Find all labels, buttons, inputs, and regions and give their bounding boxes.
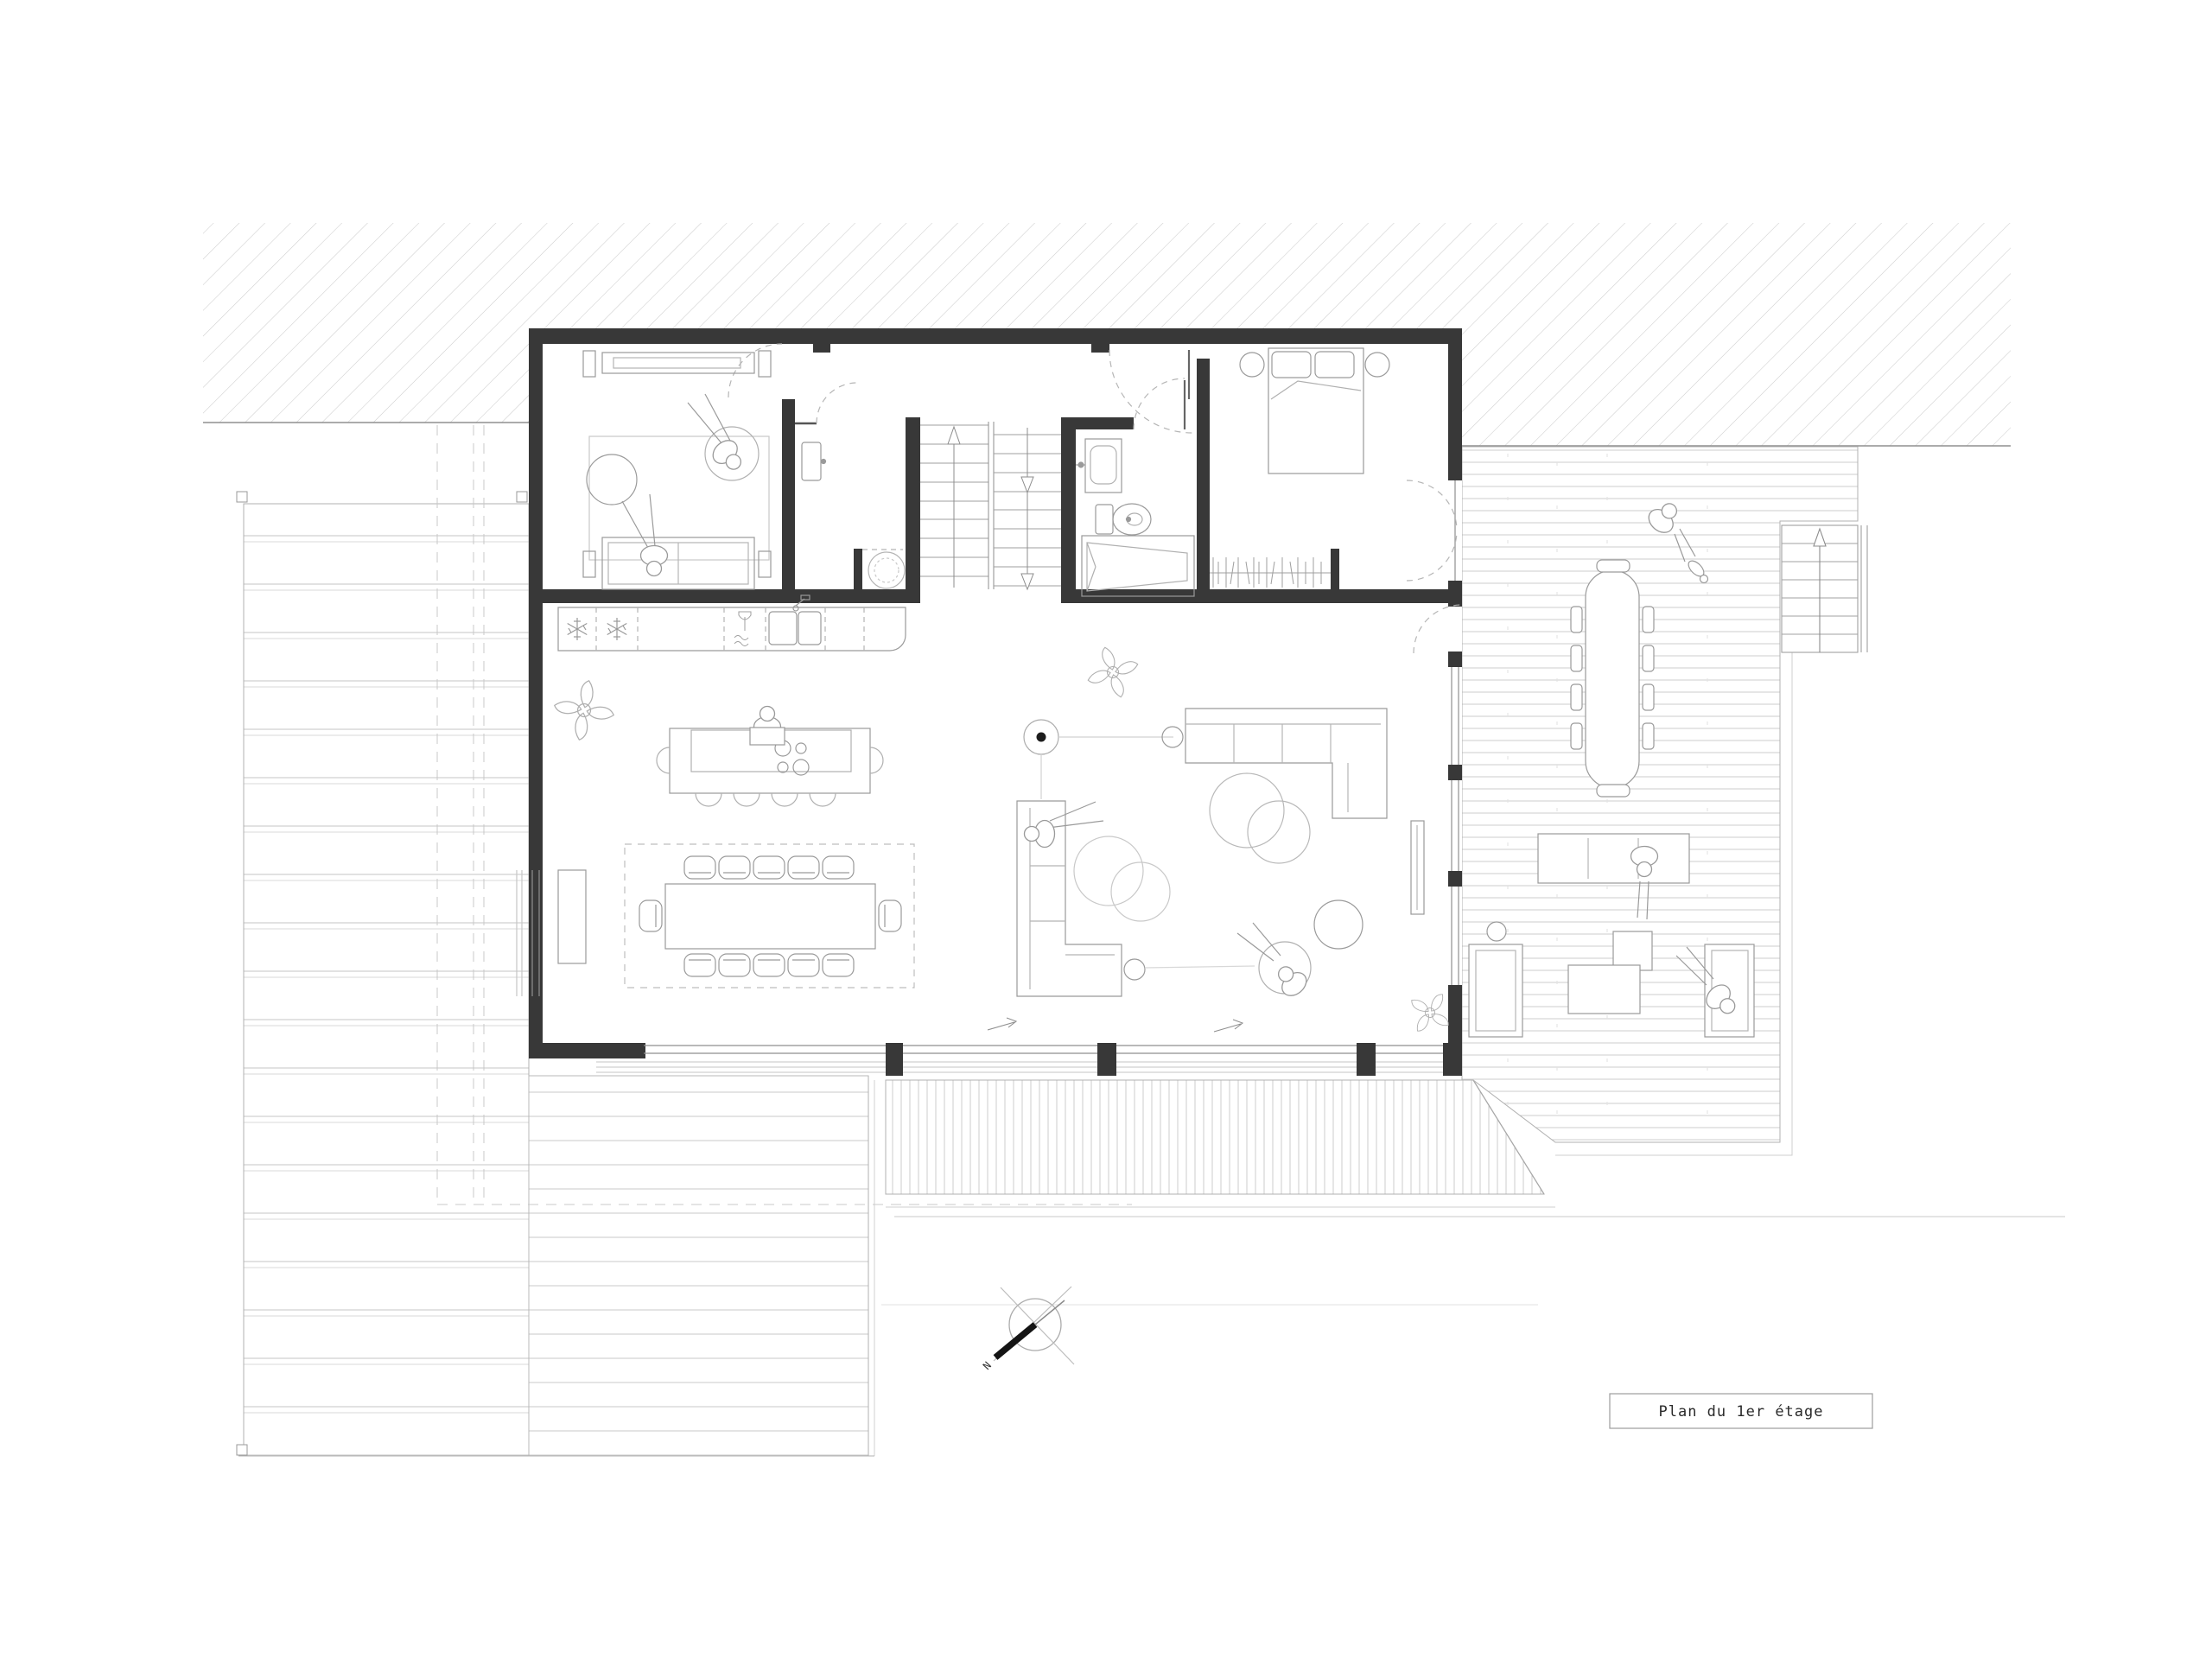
side-table [1487, 922, 1506, 941]
tray [750, 728, 785, 745]
outdoor-chair [1597, 560, 1630, 572]
title-block: Plan du 1er étage [1610, 1394, 1872, 1428]
outdoor-chair [1643, 607, 1654, 632]
deck-post [237, 492, 247, 502]
lower-left-deck-boards [529, 1076, 868, 1456]
wall-east [1448, 328, 1462, 480]
outdoor-chair [1571, 607, 1582, 632]
south-deck-boards [886, 1080, 1544, 1194]
exterior-stair [1782, 525, 1867, 652]
outdoor-table [1586, 570, 1639, 788]
outdoor-chair [1643, 723, 1654, 749]
hatch-band-left [203, 328, 529, 423]
wall-west [529, 328, 543, 1058]
wall-bedroom1-east [782, 399, 795, 596]
floor-plan-drawing: N Plan du 1er étage [0, 0, 2212, 1659]
wall-bedroom2-west [1197, 359, 1210, 589]
left-deck-boards [244, 504, 529, 1456]
hatch-band-top [203, 223, 2011, 328]
outdoor-chair [1571, 645, 1582, 671]
wall-south [529, 1043, 645, 1058]
outdoor-bench [1538, 834, 1689, 883]
hatch-band-right [1462, 328, 2011, 446]
deck-post [517, 492, 527, 502]
north-label: N [981, 1359, 994, 1372]
deck-post [237, 1445, 247, 1455]
floor-plan-sheet: N Plan du 1er étage [0, 0, 2212, 1659]
wall-bedroom1-south [543, 589, 795, 603]
outdoor-chair [1571, 684, 1582, 710]
south-deck-strip [886, 1080, 1555, 1207]
right-deck [1462, 447, 1867, 1155]
compass: N [981, 1287, 1074, 1372]
coffee-table [1568, 965, 1640, 1014]
outdoor-chair [1643, 645, 1654, 671]
coffee-table [1613, 931, 1652, 970]
outdoor-chair [1643, 684, 1654, 710]
north-needle [995, 1325, 1035, 1357]
wall-stair-west [906, 417, 920, 589]
wall-north [529, 328, 1462, 344]
outdoor-chair [1571, 723, 1582, 749]
wall-bath-north [1076, 417, 1134, 429]
plan-title: Plan du 1er étage [1659, 1403, 1824, 1421]
outdoor-chair [1597, 785, 1630, 797]
window-sills-south [596, 1062, 1446, 1072]
wall-bedroom2-south [1210, 589, 1448, 603]
wall-stair-east [1061, 417, 1076, 589]
